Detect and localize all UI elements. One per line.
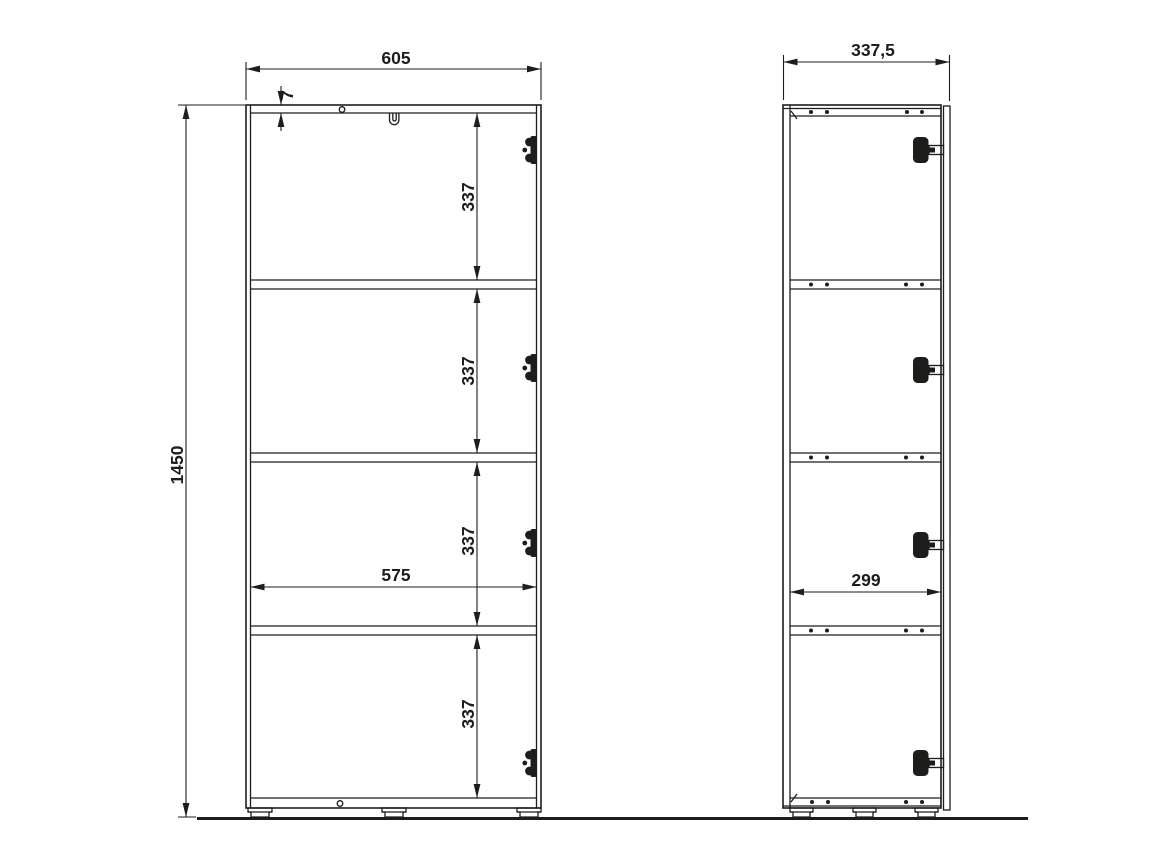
keyhole-hanger-inner xyxy=(393,113,396,121)
dim-shelf-spacing-label: 337 xyxy=(458,699,478,728)
corner-cam-mark xyxy=(791,111,797,119)
hinge-icon xyxy=(522,749,537,777)
front-hinges xyxy=(522,136,537,777)
hinge-icon xyxy=(913,532,944,558)
front-view xyxy=(246,105,541,817)
dim-overall-width-label: 605 xyxy=(381,48,410,68)
bottom-screws xyxy=(810,800,924,804)
side-feet xyxy=(790,808,938,817)
dim-top-thickness-label: 7 xyxy=(277,90,297,100)
dim-overall-height-label: 1450 xyxy=(167,445,187,484)
drawing-canvas: 605 7 1450 337 337 337 337 575 337,5 299 xyxy=(0,0,1153,864)
hinge-icon xyxy=(913,357,944,383)
side-view xyxy=(783,105,950,817)
dim-inner-width-label: 575 xyxy=(381,565,410,585)
hinge-icon xyxy=(522,354,537,382)
door-panel xyxy=(944,106,951,810)
dim-shelf-spacing-label: 337 xyxy=(458,356,478,385)
top-screws xyxy=(809,110,924,114)
keyhole-hanger-icon xyxy=(390,113,399,125)
dim-inner-depth-label: 299 xyxy=(851,570,880,590)
hinge-icon xyxy=(913,750,944,776)
dimensions-side: 337,5 299 xyxy=(784,40,950,592)
technical-drawing-sheet: 605 7 1450 337 337 337 337 575 337,5 299 xyxy=(0,0,1153,864)
hinge-icon xyxy=(522,529,537,557)
hinge-icon xyxy=(522,136,537,164)
top-hole xyxy=(339,107,345,113)
dim-shelf-spacing-label: 337 xyxy=(458,526,478,555)
dim-overall-depth-label: 337,5 xyxy=(851,40,895,60)
front-feet xyxy=(248,808,541,817)
dim-shelf-spacing-label: 337 xyxy=(458,182,478,211)
side-hinges xyxy=(913,137,944,776)
hinge-icon xyxy=(913,137,944,163)
bottom-hole xyxy=(337,801,343,807)
dimensions-front: 605 7 1450 337 337 337 337 575 xyxy=(167,48,541,817)
